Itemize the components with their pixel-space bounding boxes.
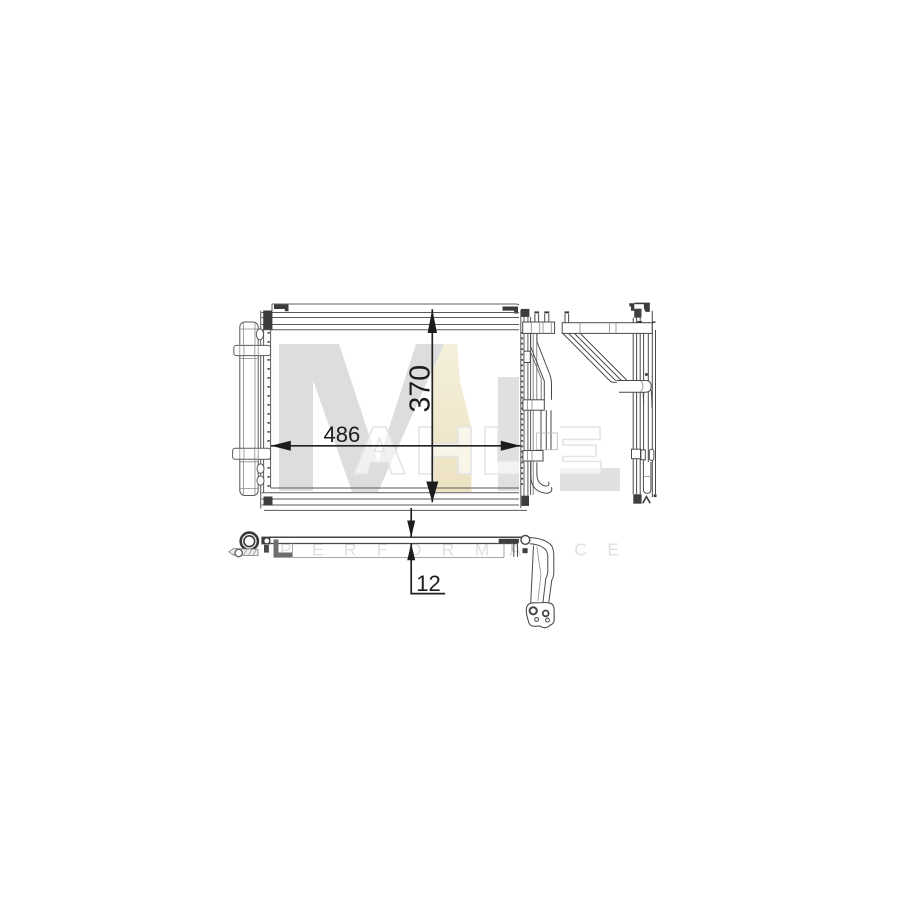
svg-text:370: 370 (405, 365, 437, 413)
svg-text:486: 486 (324, 422, 361, 447)
svg-text:12: 12 (416, 571, 440, 596)
